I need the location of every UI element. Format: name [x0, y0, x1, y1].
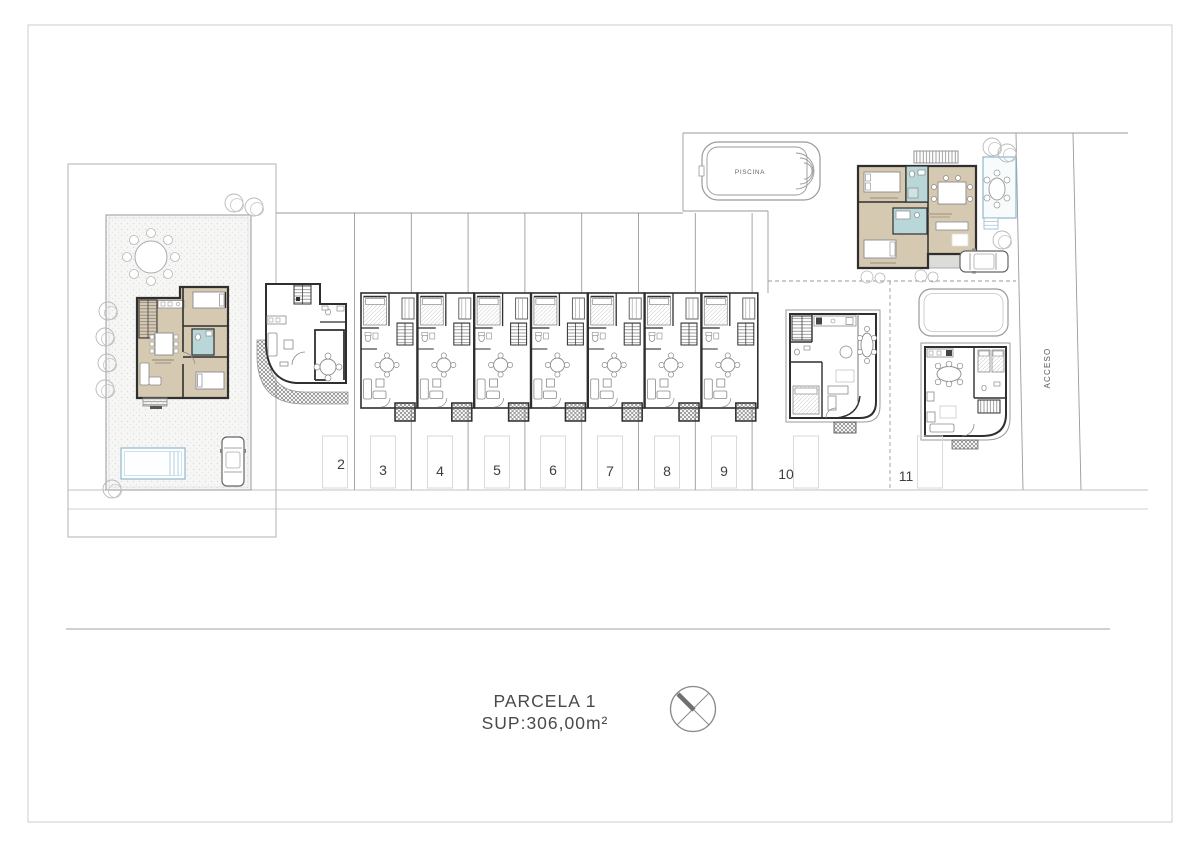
parcel-number-11: 11 — [899, 468, 914, 484]
table — [840, 346, 852, 358]
sofa — [828, 386, 848, 394]
parcel-area: SUP:306,00m² — [482, 713, 609, 733]
toilet — [795, 349, 800, 355]
sofa — [930, 424, 954, 432]
pool — [919, 289, 1008, 336]
car — [220, 437, 246, 486]
entry-steps — [952, 440, 978, 449]
parking-bays — [323, 436, 943, 488]
parcel-number-10: 10 — [778, 466, 794, 482]
kitchen-island — [936, 222, 968, 230]
dining-table — [155, 333, 173, 355]
townhouse-row — [361, 293, 758, 421]
car — [960, 249, 1008, 274]
road-lines — [66, 490, 1148, 629]
dining-table — [937, 367, 961, 382]
parcel-number-5: 5 — [493, 462, 501, 478]
parcel-numbers: 2 3 4 5 6 7 8 9 10 11 — [337, 456, 913, 484]
piscina-label: PISCINA — [735, 169, 765, 176]
site-plan: PISCINA — [0, 0, 1200, 847]
access-road-left-edge — [1016, 133, 1023, 490]
top-right-villa-floorplan — [858, 151, 976, 268]
pool-steps — [984, 218, 998, 229]
page-title: PARCELA 1 — [493, 691, 596, 711]
parcel-number-6: 6 — [549, 462, 557, 478]
kitchen-counter — [158, 301, 184, 309]
stairs — [978, 400, 1000, 413]
dining-table — [938, 182, 966, 204]
entry-steps — [834, 422, 856, 433]
parcel-10-house — [786, 310, 880, 433]
kitchen-counter — [267, 316, 286, 324]
pool-piscina: PISCINA — [699, 142, 820, 200]
parcel-number-3: 3 — [379, 462, 387, 478]
outdoor-table — [123, 229, 180, 286]
terrace-table — [861, 333, 873, 357]
top-right-parcel: PISCINA — [699, 138, 1017, 283]
parcel-number-7: 7 — [606, 463, 614, 479]
sofa — [140, 363, 149, 385]
access-road-right-edge — [1073, 133, 1081, 490]
north-compass-icon — [671, 687, 716, 732]
parcel-number-9: 9 — [720, 463, 728, 479]
porch-steps — [143, 398, 167, 406]
outdoor-deck — [983, 157, 1016, 229]
parcel-number-8: 8 — [663, 463, 671, 479]
parcel-2-house — [257, 284, 348, 404]
pool-parcel-1 — [121, 448, 185, 479]
parcel-1-villa — [96, 194, 264, 498]
outdoor-table — [989, 178, 1005, 200]
title-block: PARCELA 1 SUP:306,00m² — [482, 687, 716, 734]
parcel-number-4: 4 — [436, 463, 444, 479]
parcel-1-floorplan — [137, 287, 228, 409]
acceso-label: ACCESO — [1043, 348, 1052, 389]
bathtub — [896, 211, 910, 219]
stairs — [914, 151, 958, 163]
parcel-number-2: 2 — [337, 456, 345, 472]
dining-table — [320, 359, 336, 375]
parcel-11-house — [919, 289, 1010, 449]
sofa — [268, 333, 277, 356]
